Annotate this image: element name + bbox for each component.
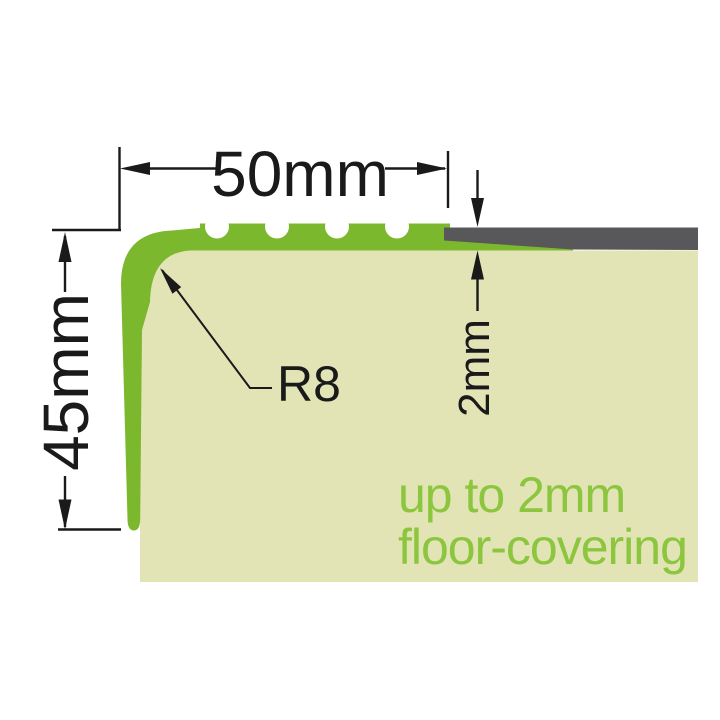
height-arrow-bottom xyxy=(59,500,72,530)
profile-drawing: 50mm 45mm 2mm R8 up to 2mm floor-coverin… xyxy=(0,0,720,720)
thickness-dimension-label: 2mm xyxy=(450,319,499,417)
width-arrow-right xyxy=(417,162,447,175)
tread-notch xyxy=(385,215,409,239)
tread-notch xyxy=(205,215,229,239)
height-arrow-top xyxy=(59,232,72,262)
width-dimension-label: 50mm xyxy=(211,138,389,210)
tread-notch xyxy=(265,215,289,239)
width-arrow-left xyxy=(120,162,150,175)
height-dimension-label: 45mm xyxy=(30,293,102,471)
covering-note-line2: floor-covering xyxy=(398,519,687,575)
covering-note-line1: up to 2mm xyxy=(398,467,625,523)
thickness-arrow-down xyxy=(471,198,484,227)
radius-callout-label: R8 xyxy=(277,356,341,412)
tread-notch xyxy=(325,215,349,239)
stair-nosing-diagram: 50mm 45mm 2mm R8 up to 2mm floor-coverin… xyxy=(0,0,720,720)
